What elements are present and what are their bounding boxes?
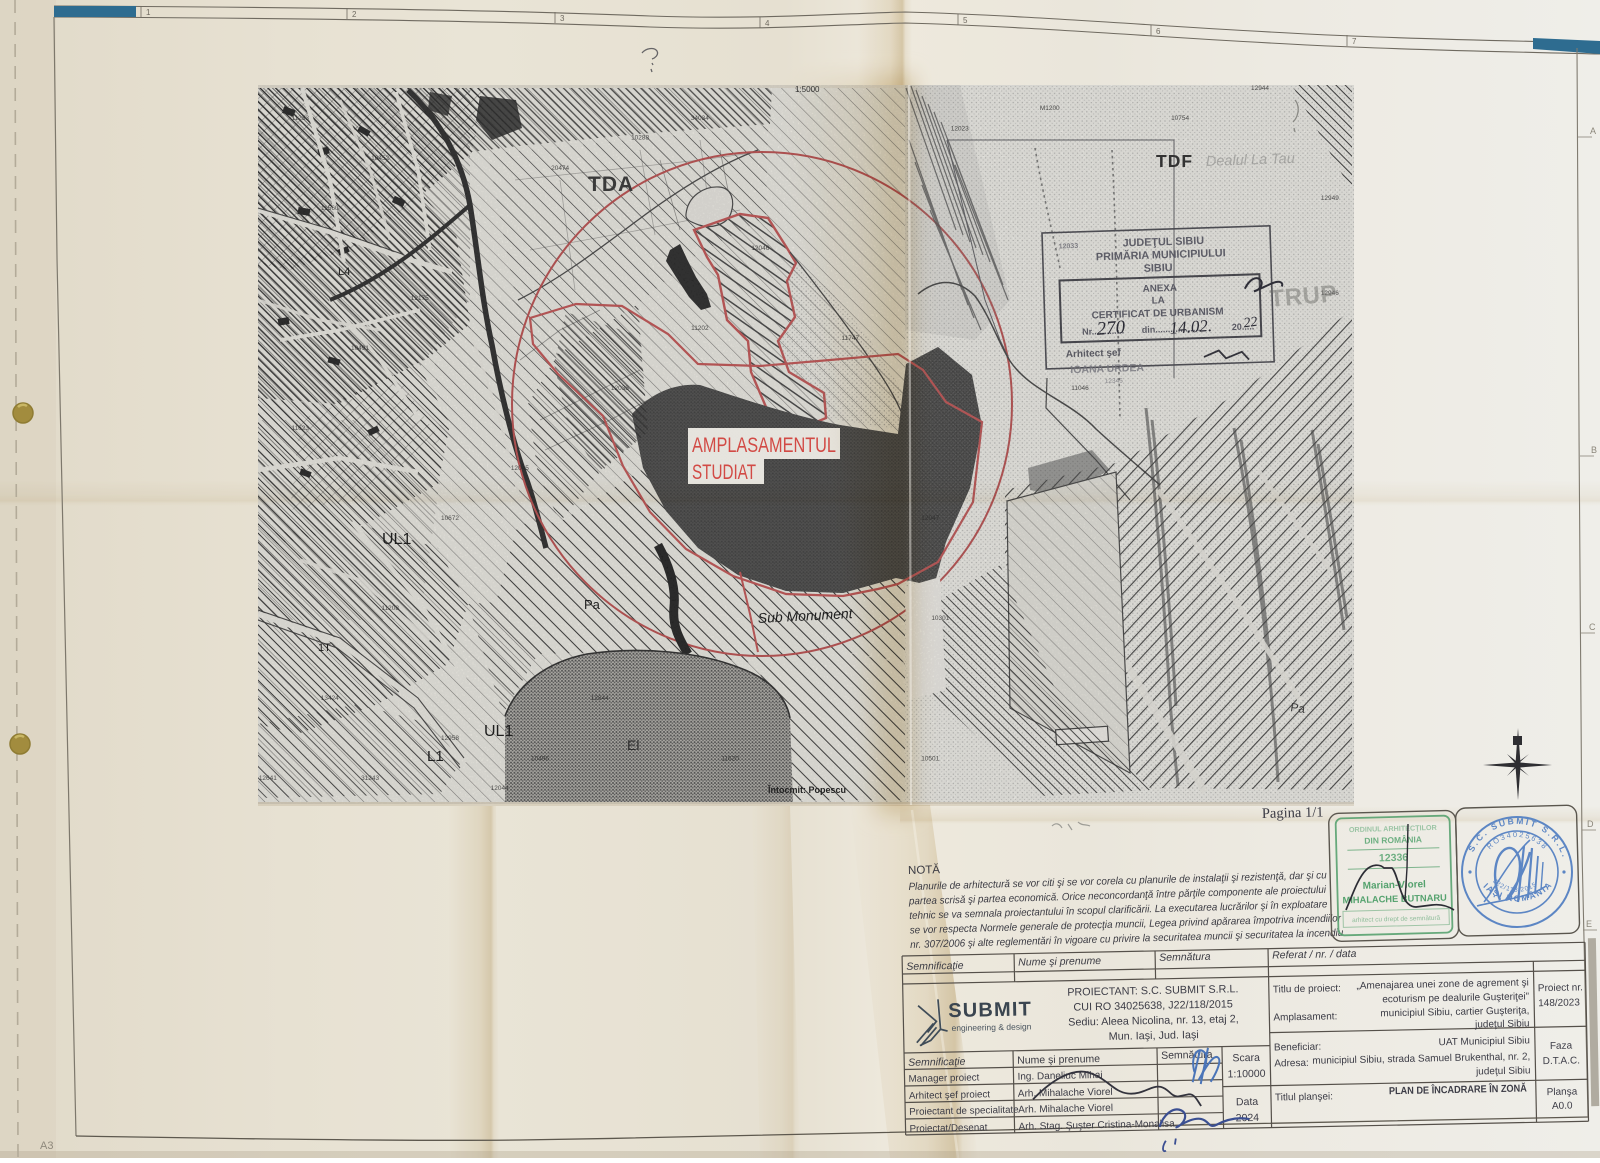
svg-text:12046: 12046 [751,245,769,252]
svg-text:12949: 12949 [1321,195,1339,202]
svg-text:E: E [1586,919,1592,929]
svg-text:11208: 11208 [381,605,399,612]
svg-text:TDF: TDF [1156,151,1193,171]
svg-text:Pa: Pa [1290,700,1307,716]
svg-text:12641: 12641 [259,775,277,782]
svg-text:10288: 10288 [631,135,649,142]
svg-text:Ing. Daneliuc Mihai: Ing. Daneliuc Mihai [1017,1070,1102,1083]
svg-text:C: C [1589,622,1596,632]
svg-text:10452: 10452 [371,155,389,162]
svg-text:10491: 10491 [351,345,369,352]
svg-text:Beneficiar:: Beneficiar: [1274,1042,1321,1054]
svg-text:Dealul La Tau: Dealul La Tau [1206,151,1295,170]
svg-text:Proiect nr.: Proiect nr. [1538,982,1583,994]
svg-text:20474: 20474 [551,165,569,172]
svg-text:12336: 12336 [1379,852,1409,865]
svg-text:Întocmit: Popescu: Întocmit: Popescu [767,784,846,795]
svg-text:10301: 10301 [931,615,949,622]
svg-text:UAT Municipiul Sibiu: UAT Municipiul Sibiu [1438,1035,1530,1048]
svg-text:11560: 11560 [321,205,339,212]
svg-text:El: El [627,737,639,753]
svg-text:34034: 34034 [691,115,709,122]
svg-text:Marian-Viorel: Marian-Viorel [1363,879,1427,892]
svg-text:31243: 31243 [361,775,379,782]
svg-text:Planşa: Planşa [1547,1086,1578,1098]
svg-text:Arh. Mihalache Viorel: Arh. Mihalache Viorel [1018,1103,1113,1116]
svg-text:Nume şi prenume: Nume şi prenume [1018,955,1101,969]
svg-text:L1: L1 [427,748,444,765]
svg-text:D.T.A.C.: D.T.A.C. [1543,1055,1580,1067]
svg-text:B: B [1591,445,1597,455]
svg-text:22: 22 [1243,315,1259,332]
svg-text:Pagina 1/1: Pagina 1/1 [1262,804,1324,822]
svg-text:Titlul planşei:: Titlul planşei: [1275,1091,1333,1103]
svg-text:UL1: UL1 [484,723,513,740]
svg-text:Semnificaţie: Semnificaţie [906,960,964,973]
svg-text:ANEXA: ANEXA [1142,283,1177,295]
svg-text:Manager proiect: Manager proiect [908,1072,979,1084]
svg-text:Adresa:: Adresa: [1274,1058,1309,1070]
svg-text:TRUP: TRUP [1269,280,1338,313]
svg-text:10501: 10501 [921,755,939,762]
svg-text:DIN ROMÂNIA: DIN ROMÂNIA [1364,833,1422,846]
svg-text:NOTĂ: NOTĂ [908,863,941,877]
svg-text:UL1: UL1 [382,531,411,548]
svg-text:judeţul Sibiu: judeţul Sibiu [1474,1018,1530,1030]
svg-text:Arhitect şef proiect: Arhitect şef proiect [909,1089,991,1102]
svg-text:M1200: M1200 [1040,105,1060,112]
svg-text:2: 2 [352,10,357,19]
svg-text:Mun. Iaşi, Jud. Iaşi: Mun. Iaşi, Jud. Iaşi [1109,1029,1199,1043]
svg-text:11233: 11233 [291,115,309,122]
svg-text:Arh. Mihalache Viorel: Arh. Mihalache Viorel [1018,1087,1113,1100]
svg-text:12033: 12033 [1059,243,1079,251]
svg-text:12175: 12175 [411,295,429,302]
svg-text:Semnificaţie: Semnificaţie [908,1056,966,1069]
svg-text:AMPLASAMENTUL: AMPLASAMENTUL [692,434,836,457]
svg-text:A0.0: A0.0 [1552,1101,1573,1112]
svg-text:3: 3 [560,14,565,23]
svg-text:12944: 12944 [1251,85,1269,92]
svg-text:12044: 12044 [491,785,509,792]
svg-text:D: D [1587,819,1594,829]
svg-text:Proiectat/Desenat: Proiectat/Desenat [909,1122,987,1135]
svg-text:Referat / nr. / data: Referat / nr. / data [1272,948,1357,962]
svg-text:L4: L4 [338,266,350,278]
svg-text:12958: 12958 [441,735,459,742]
svg-text:Faza: Faza [1550,1041,1573,1052]
svg-text:12045: 12045 [511,465,529,472]
svg-text:Scara: Scara [1232,1052,1260,1065]
svg-text:TDA: TDA [588,173,634,196]
svg-text:13424: 13424 [321,695,339,702]
svg-text:1: 1 [146,8,151,17]
svg-text:11202: 11202 [691,325,709,332]
svg-text:12844: 12844 [591,695,609,702]
svg-text:12047: 12047 [921,515,939,522]
svg-text:Titlu de proiect:: Titlu de proiect: [1273,983,1341,995]
svg-text:engineering & design: engineering & design [951,1021,1031,1033]
svg-text:12038: 12038 [611,385,629,392]
svg-text:270: 270 [1096,317,1126,340]
svg-text:Nume şi prenume: Nume şi prenume [1017,1053,1100,1067]
svg-text:7: 7 [1352,37,1357,46]
svg-text:148/2023: 148/2023 [1538,997,1580,1009]
svg-text:SIBIU: SIBIU [1144,262,1173,275]
svg-text:judeţul Sibiu: judeţul Sibiu [1475,1065,1531,1077]
svg-text:A: A [1590,126,1596,136]
svg-text:Data: Data [1236,1096,1259,1108]
svg-text:4: 4 [765,19,770,28]
svg-text:6: 6 [1156,27,1161,36]
svg-text:11046: 11046 [1071,385,1089,392]
svg-text:A3: A3 [40,1140,53,1152]
svg-text:11623: 11623 [291,425,309,432]
svg-text:Proiectant de specialitate: Proiectant de specialitate [909,1105,1019,1118]
svg-text:SUBMIT: SUBMIT [948,998,1032,1022]
svg-text:LA: LA [1151,295,1164,306]
svg-text:12345: 12345 [1105,378,1124,386]
svg-text:14.02.: 14.02. [1169,316,1213,338]
svg-text:10672: 10672 [441,515,459,522]
svg-text:IOANA URDEA: IOANA URDEA [1070,362,1144,376]
svg-text:11620: 11620 [721,755,739,762]
svg-text:Amplasament:: Amplasament: [1273,1011,1337,1023]
svg-text:5: 5 [963,16,968,25]
svg-text:12023: 12023 [951,125,969,132]
svg-text:Pa: Pa [584,597,601,612]
svg-text:10496: 10496 [531,755,549,762]
svg-text:1T: 1T [318,642,331,654]
svg-text:10754: 10754 [1171,115,1189,122]
svg-text:1:10000: 1:10000 [1227,1068,1265,1081]
svg-text:JUDEŢUL SIBIU: JUDEŢUL SIBIU [1122,235,1204,250]
svg-text:Semnătura: Semnătura [1159,951,1211,964]
svg-text:Arhitect şef: Arhitect şef [1066,348,1122,361]
